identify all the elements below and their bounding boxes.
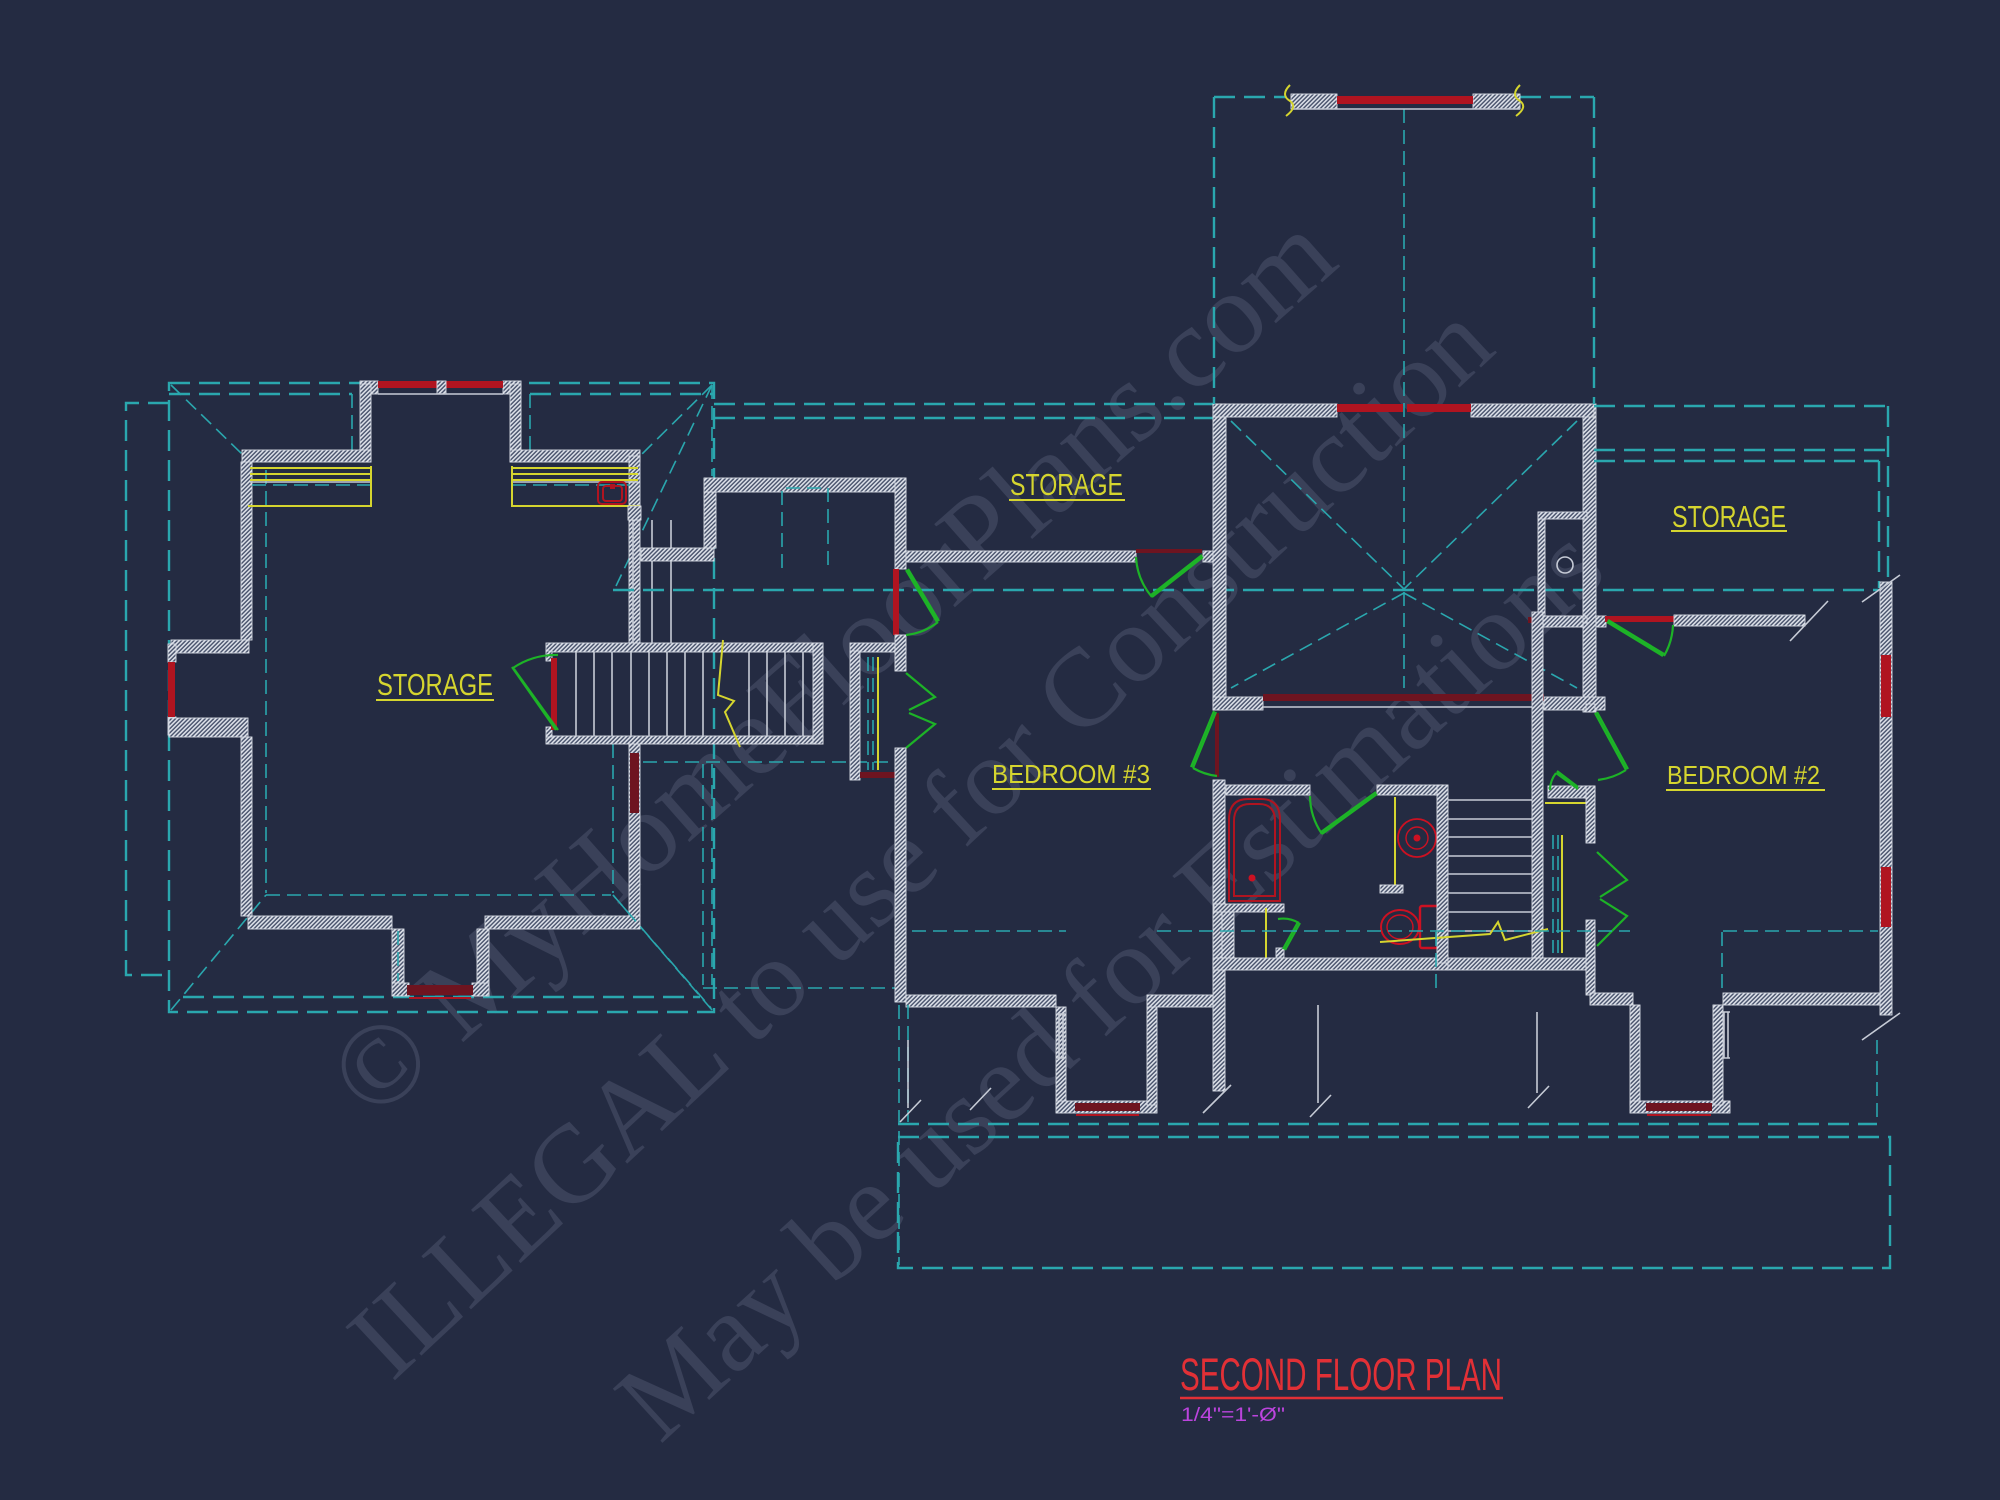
svg-text:1/4"=1'-Ø": 1/4"=1'-Ø" <box>1181 1405 1285 1426</box>
svg-text:SECOND FLOOR PLAN: SECOND FLOOR PLAN <box>1180 1349 1502 1400</box>
svg-text:STORAGE: STORAGE <box>1010 467 1123 502</box>
svg-text:BEDROOM #3: BEDROOM #3 <box>992 759 1150 789</box>
svg-text:BEDROOM #2: BEDROOM #2 <box>1667 760 1820 790</box>
svg-text:STORAGE: STORAGE <box>1672 499 1786 534</box>
svg-text:STORAGE: STORAGE <box>377 667 493 702</box>
